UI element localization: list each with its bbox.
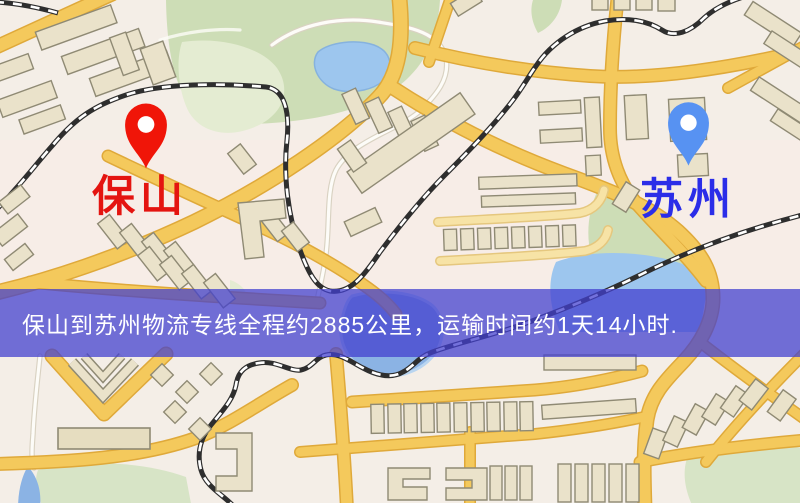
destination-pin-icon[interactable] [666,101,711,169]
route-info-text: 保山到苏州物流专线全程约2885公里，运输时间约1天14小时. [0,306,678,340]
route-info-banner: 保山到苏州物流专线全程约2885公里，运输时间约1天14小时. [0,289,800,357]
origin-pin-icon[interactable] [123,102,169,172]
map-canvas[interactable] [0,0,800,503]
map-screenshot: 保山 苏州 保山到苏州物流专线全程约2885公里，运输时间约1天14小时. [0,0,800,503]
